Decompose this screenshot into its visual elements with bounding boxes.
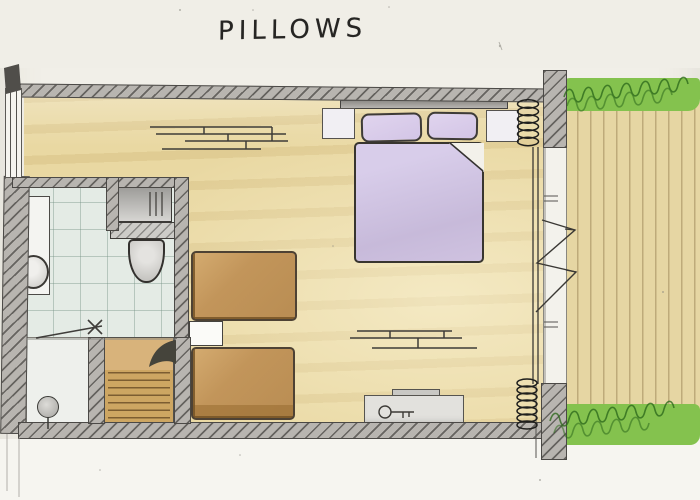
left-window: [5, 88, 22, 178]
hedge-bottom: [546, 404, 700, 445]
bathroom-wall-top: [12, 177, 188, 188]
bathroom-wall-right: [174, 177, 189, 338]
terrace-deck: [564, 102, 700, 410]
toilet-ledge: [110, 222, 178, 239]
entry-floor: [26, 337, 90, 425]
stair-steps: [108, 372, 170, 421]
right-pillar-bottom: [541, 383, 567, 460]
toilet-cistern: [118, 187, 172, 222]
toilet-nib-wall: [106, 177, 119, 231]
wall-left: [0, 176, 30, 434]
paper-bottom-band: [0, 439, 700, 500]
sideboard: [364, 395, 464, 425]
wall-bottom: [18, 422, 562, 439]
double-bed-duvet: [354, 142, 484, 263]
table-between-twin-beds: [189, 321, 223, 346]
sliding-door-track: [543, 148, 567, 383]
pillow-left-icon: [361, 112, 423, 142]
entry-stairs-divider-wall: [88, 337, 105, 424]
twin-bed-1: [191, 251, 297, 321]
pillow-right-icon: [427, 112, 478, 141]
right-pillar-top: [543, 70, 567, 148]
door-knob-icon: [37, 396, 59, 418]
nightstand-right: [486, 110, 519, 142]
stairs: [104, 337, 174, 425]
scanned-floor-plan: PILLOWS: [0, 0, 700, 500]
hedge-top: [560, 78, 700, 111]
nightstand-left: [322, 108, 355, 139]
plan-title: PILLOWS: [218, 13, 367, 46]
twin-bed-2: [191, 347, 295, 420]
stairs-wall-right: [174, 337, 191, 424]
